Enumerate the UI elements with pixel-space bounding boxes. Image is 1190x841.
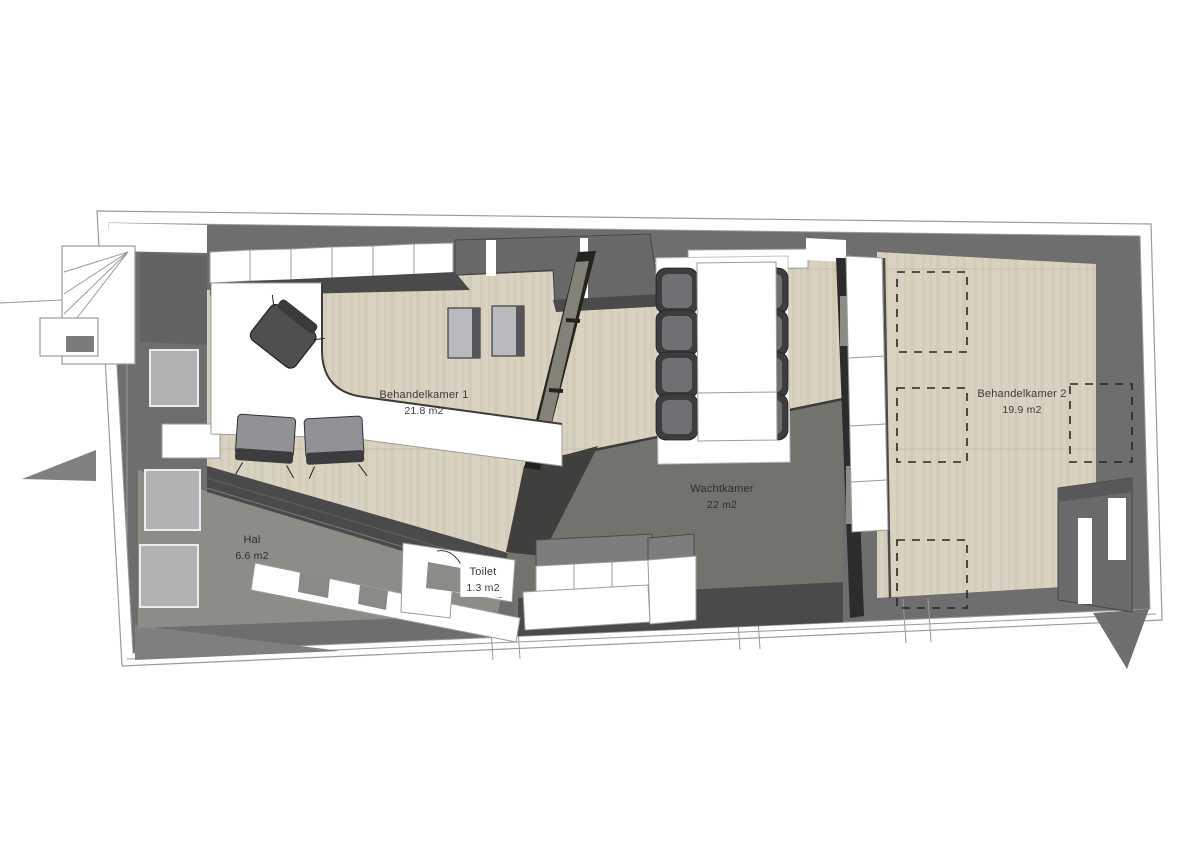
room-label-hal: Hal 6.6 m2 (235, 532, 268, 564)
room-name: Behandelkamer 1 (379, 387, 468, 404)
room-label-behandelkamer-1: Behandelkamer 1 21.8 m2 (379, 387, 468, 419)
floorplan-rendering (0, 0, 1190, 841)
room-label-wachtkamer: Wachtkamer 22 m2 (690, 481, 753, 513)
entry-wedge (22, 450, 96, 481)
window (145, 470, 200, 530)
room-label-behandelkamer-2: Behandelkamer 2 19.9 m2 (977, 386, 1066, 418)
meeting-table (697, 262, 777, 441)
room-area: 22 m2 (690, 497, 753, 513)
room-name: Behandelkamer 2 (977, 386, 1066, 403)
room-name: Wachtkamer (690, 481, 753, 498)
room-area: 1.3 m2 (466, 580, 499, 596)
corner-shadow (1093, 609, 1149, 669)
room-area: 21.8 m2 (379, 403, 468, 419)
stair-step (66, 336, 94, 352)
room-name: Hal (235, 532, 268, 549)
room-area: 19.9 m2 (977, 402, 1066, 418)
room-label-toilet: Toilet 1.3 m2 (460, 563, 505, 597)
door-panels (846, 256, 888, 532)
right-cabinet (1058, 478, 1132, 612)
window (150, 350, 198, 406)
room-name: Toilet (466, 564, 499, 581)
floorplan-canvas: Behandelkamer 1 21.8 m2 Wachtkamer 22 m2… (0, 0, 1190, 841)
room-area: 6.6 m2 (235, 548, 268, 564)
window (140, 545, 198, 607)
waiting-area (656, 256, 790, 464)
bench (523, 534, 696, 630)
